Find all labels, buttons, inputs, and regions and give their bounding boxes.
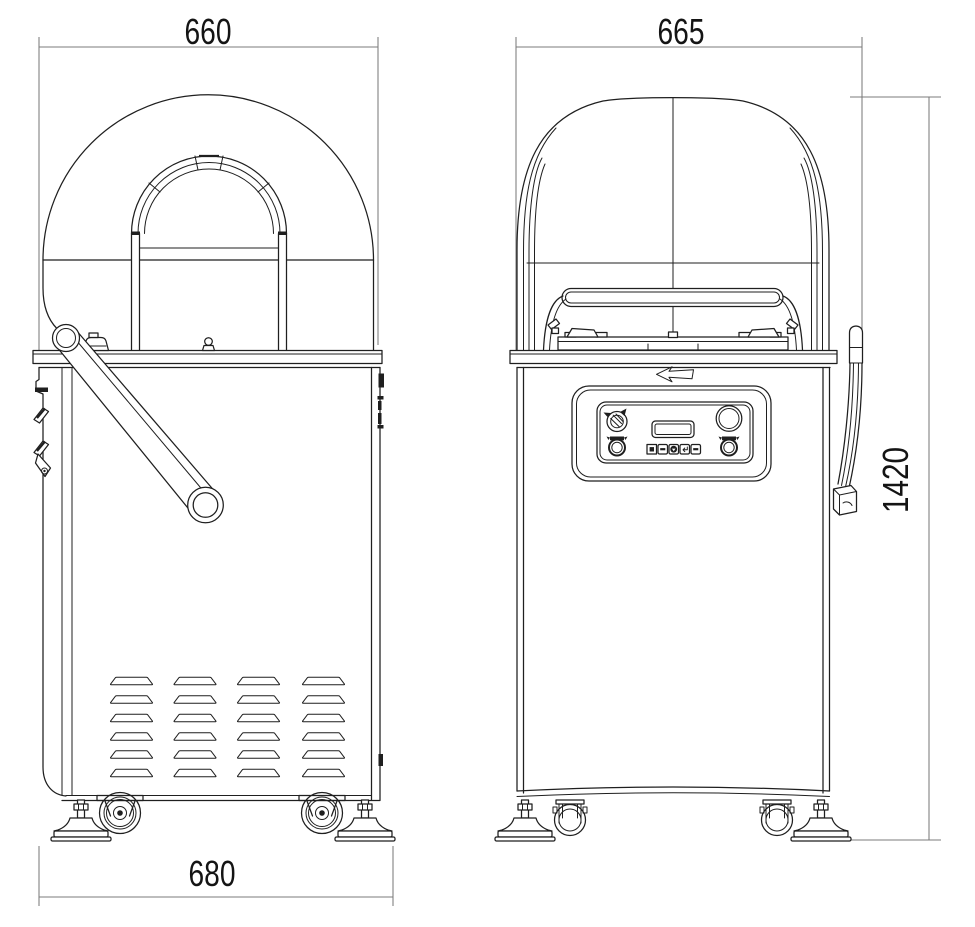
- start-button-left[interactable]: [607, 437, 628, 456]
- dim-label-side-top-width: 660: [185, 11, 232, 52]
- technical-drawing: 660 665 680 1420: [0, 0, 975, 927]
- dim-label-front-top-width: 665: [658, 11, 705, 52]
- side-view-foot-right: [335, 800, 395, 841]
- front-view-foot-left: [495, 800, 555, 841]
- side-view-caster-right: [299, 793, 345, 834]
- front-view-table: [510, 351, 837, 368]
- front-view-handle: [834, 326, 863, 515]
- front-view-caster-left: [553, 800, 587, 836]
- stop-button[interactable]: [716, 406, 742, 432]
- drawing-canvas: 660 665 680 1420: [0, 0, 975, 927]
- front-view-foot-right: [791, 800, 851, 841]
- side-view-foot-left: [51, 800, 111, 841]
- front-view: [495, 98, 863, 841]
- start-button-right[interactable]: [719, 437, 740, 456]
- timer-knob[interactable]: [604, 409, 628, 432]
- dim-label-front-height: 1420: [875, 447, 916, 513]
- side-view-hinges: [34, 374, 384, 767]
- control-panel: [572, 386, 771, 481]
- dim-front-height: [797, 97, 941, 840]
- front-view-caster-right: [760, 800, 794, 836]
- side-view-cabinet: [36, 368, 380, 801]
- front-view-body: [517, 368, 830, 797]
- side-view-vent-grille: [110, 677, 344, 777]
- side-view: [33, 95, 395, 841]
- front-view-hood: [517, 98, 829, 352]
- side-view-caster-left: [97, 793, 143, 834]
- side-view-guard-arch: [131, 156, 287, 351]
- display-screen: [652, 421, 694, 438]
- side-view-center-knob: [203, 338, 215, 351]
- keypad-buttons[interactable]: [647, 445, 701, 455]
- side-view-hood: [43, 95, 374, 351]
- dim-side-top-width: [39, 37, 378, 350]
- dim-label-side-bottom-width: 680: [189, 853, 236, 894]
- front-view-arrow-icon: [657, 367, 694, 382]
- dim-front-top-width: [516, 37, 862, 360]
